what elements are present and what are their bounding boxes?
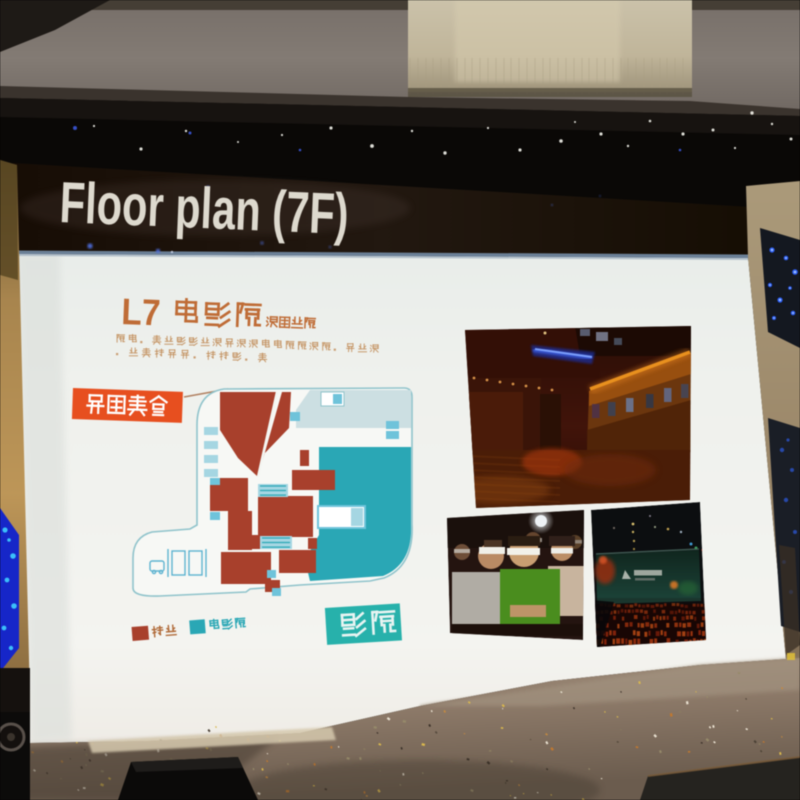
svg-text:L7: L7 [121,291,162,333]
svg-text:Floor plan (7F): Floor plan (7F) [58,170,349,247]
